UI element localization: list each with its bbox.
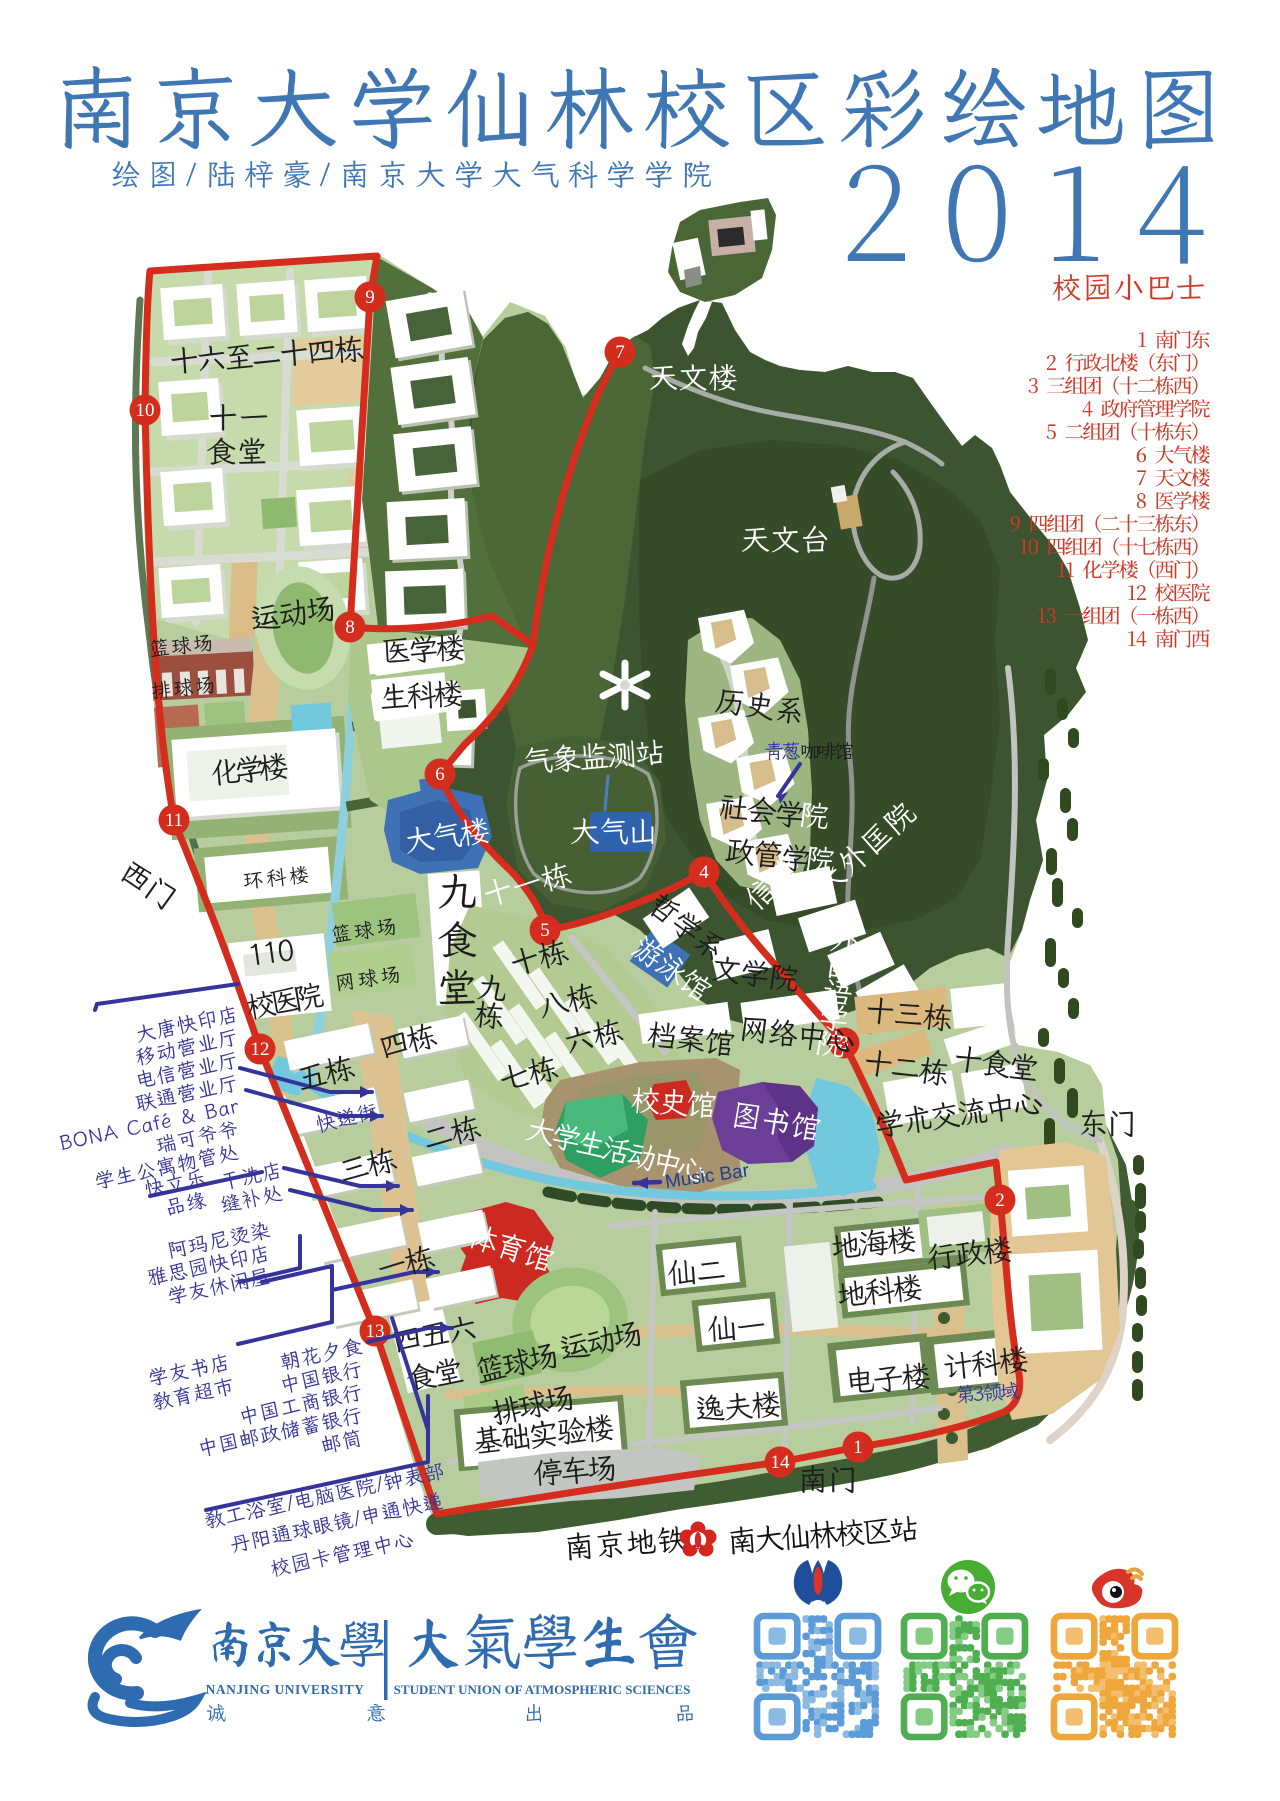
svg-text:2: 2 (995, 1190, 1005, 1211)
svg-text:6: 6 (435, 764, 445, 785)
svg-text:4: 4 (699, 862, 709, 883)
svg-text:STUDENT UNION OF ATMOSPHERIC S: STUDENT UNION OF ATMOSPHERIC SCIENCES (394, 1682, 691, 1697)
svg-text:NANJING UNIVERSITY: NANJING UNIVERSITY (206, 1682, 365, 1697)
svg-text:12: 12 (251, 1039, 270, 1060)
svg-text:1: 1 (853, 1437, 863, 1458)
svg-text:7: 7 (615, 342, 625, 363)
svg-text:5: 5 (540, 920, 550, 941)
svg-text:14: 14 (771, 1452, 791, 1473)
svg-text:9: 9 (365, 287, 375, 308)
svg-text:10: 10 (136, 400, 155, 421)
svg-text:11: 11 (165, 810, 183, 831)
svg-text:8: 8 (345, 617, 355, 638)
